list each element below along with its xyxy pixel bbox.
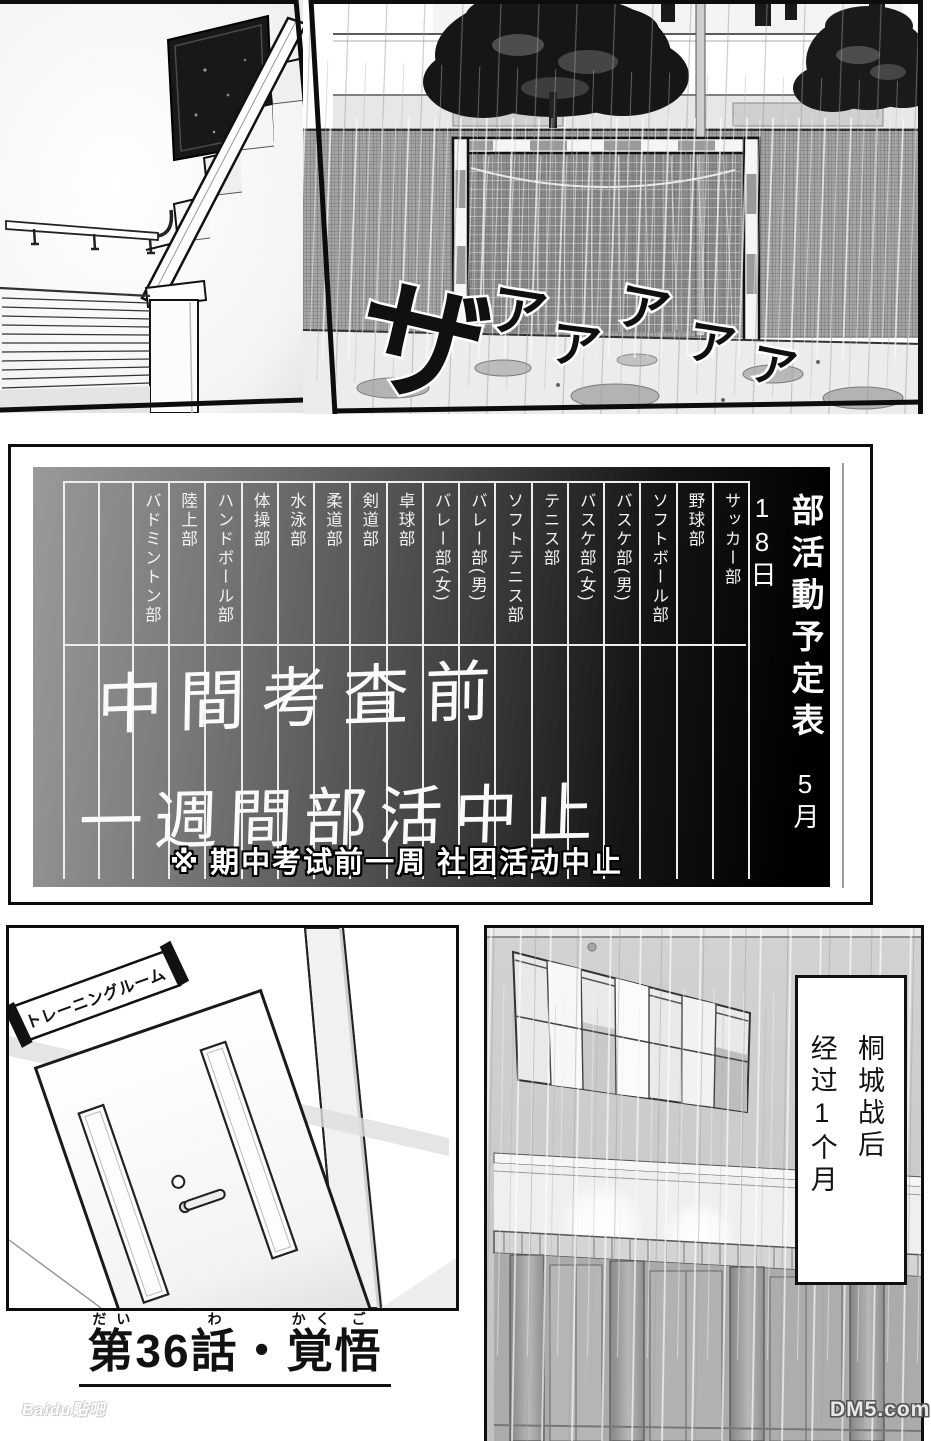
- club-label: 野球部: [686, 492, 703, 879]
- board-title-text: 部活動予定表: [787, 493, 824, 745]
- narration-line: 桐城战后: [845, 1034, 892, 1282]
- goal-illustration: ザ ア ア ア ア ア: [303, 0, 923, 414]
- club-label: バスケ部(男): [614, 492, 631, 879]
- door-illustration: トレーニングルーム: [9, 928, 456, 1308]
- panel-blackboard: 部活動予定表5月18日 サッカー部 野球部 ソフトボール部 バスケ部(男) バス…: [8, 444, 873, 905]
- manga-page: ザ ア ア ア ア ア 部活動予定表5月18日 サッカー部: [0, 0, 931, 1441]
- svg-text:ア: ア: [684, 315, 740, 375]
- board-header-column: 部活動予定表5月18日: [748, 481, 822, 879]
- panel-stairwell: [0, 0, 335, 413]
- club-column: ソフトボール部: [639, 481, 675, 879]
- club-label: サッカー部: [723, 492, 740, 879]
- translator-note: ※ 期中考试前一周 社团活动中止: [33, 839, 760, 881]
- panel-rainy-goal: ザ ア ア ア ア ア: [303, 0, 923, 414]
- club-schedule-board: 部活動予定表5月18日 サッカー部 野球部 ソフトボール部 バスケ部(男) バス…: [33, 467, 830, 887]
- board-title: 部活動予定表5月18日: [743, 493, 829, 879]
- baidu-tieba-watermark: Baidu贴吧: [22, 1396, 105, 1420]
- svg-text:ア: ア: [613, 277, 675, 344]
- svg-text:ア: ア: [548, 315, 604, 377]
- club-label: ソフトボール部: [650, 492, 667, 879]
- chapter-title-text: 第だい36話わ・覚かく悟ご: [79, 1311, 390, 1387]
- chapter-title: 第だい36話わ・覚かく悟ご: [30, 1311, 440, 1387]
- club-column: 野球部: [676, 481, 712, 879]
- club-column: バスケ部(男): [603, 481, 639, 879]
- dm5-watermark: DM5.com: [830, 1398, 930, 1422]
- board-frame-line: [842, 463, 844, 888]
- svg-text:ア: ア: [746, 337, 801, 397]
- narration-line: 经过1个月: [798, 1034, 845, 1282]
- chalk-handwriting-line1: 中間考査前: [96, 638, 507, 748]
- svg-text:ア: ア: [486, 277, 551, 348]
- panel-training-room-door: トレーニングルーム: [6, 925, 459, 1311]
- narration-box: 桐城战后 经过1个月: [795, 975, 907, 1285]
- stairwell-illustration: [0, 0, 335, 413]
